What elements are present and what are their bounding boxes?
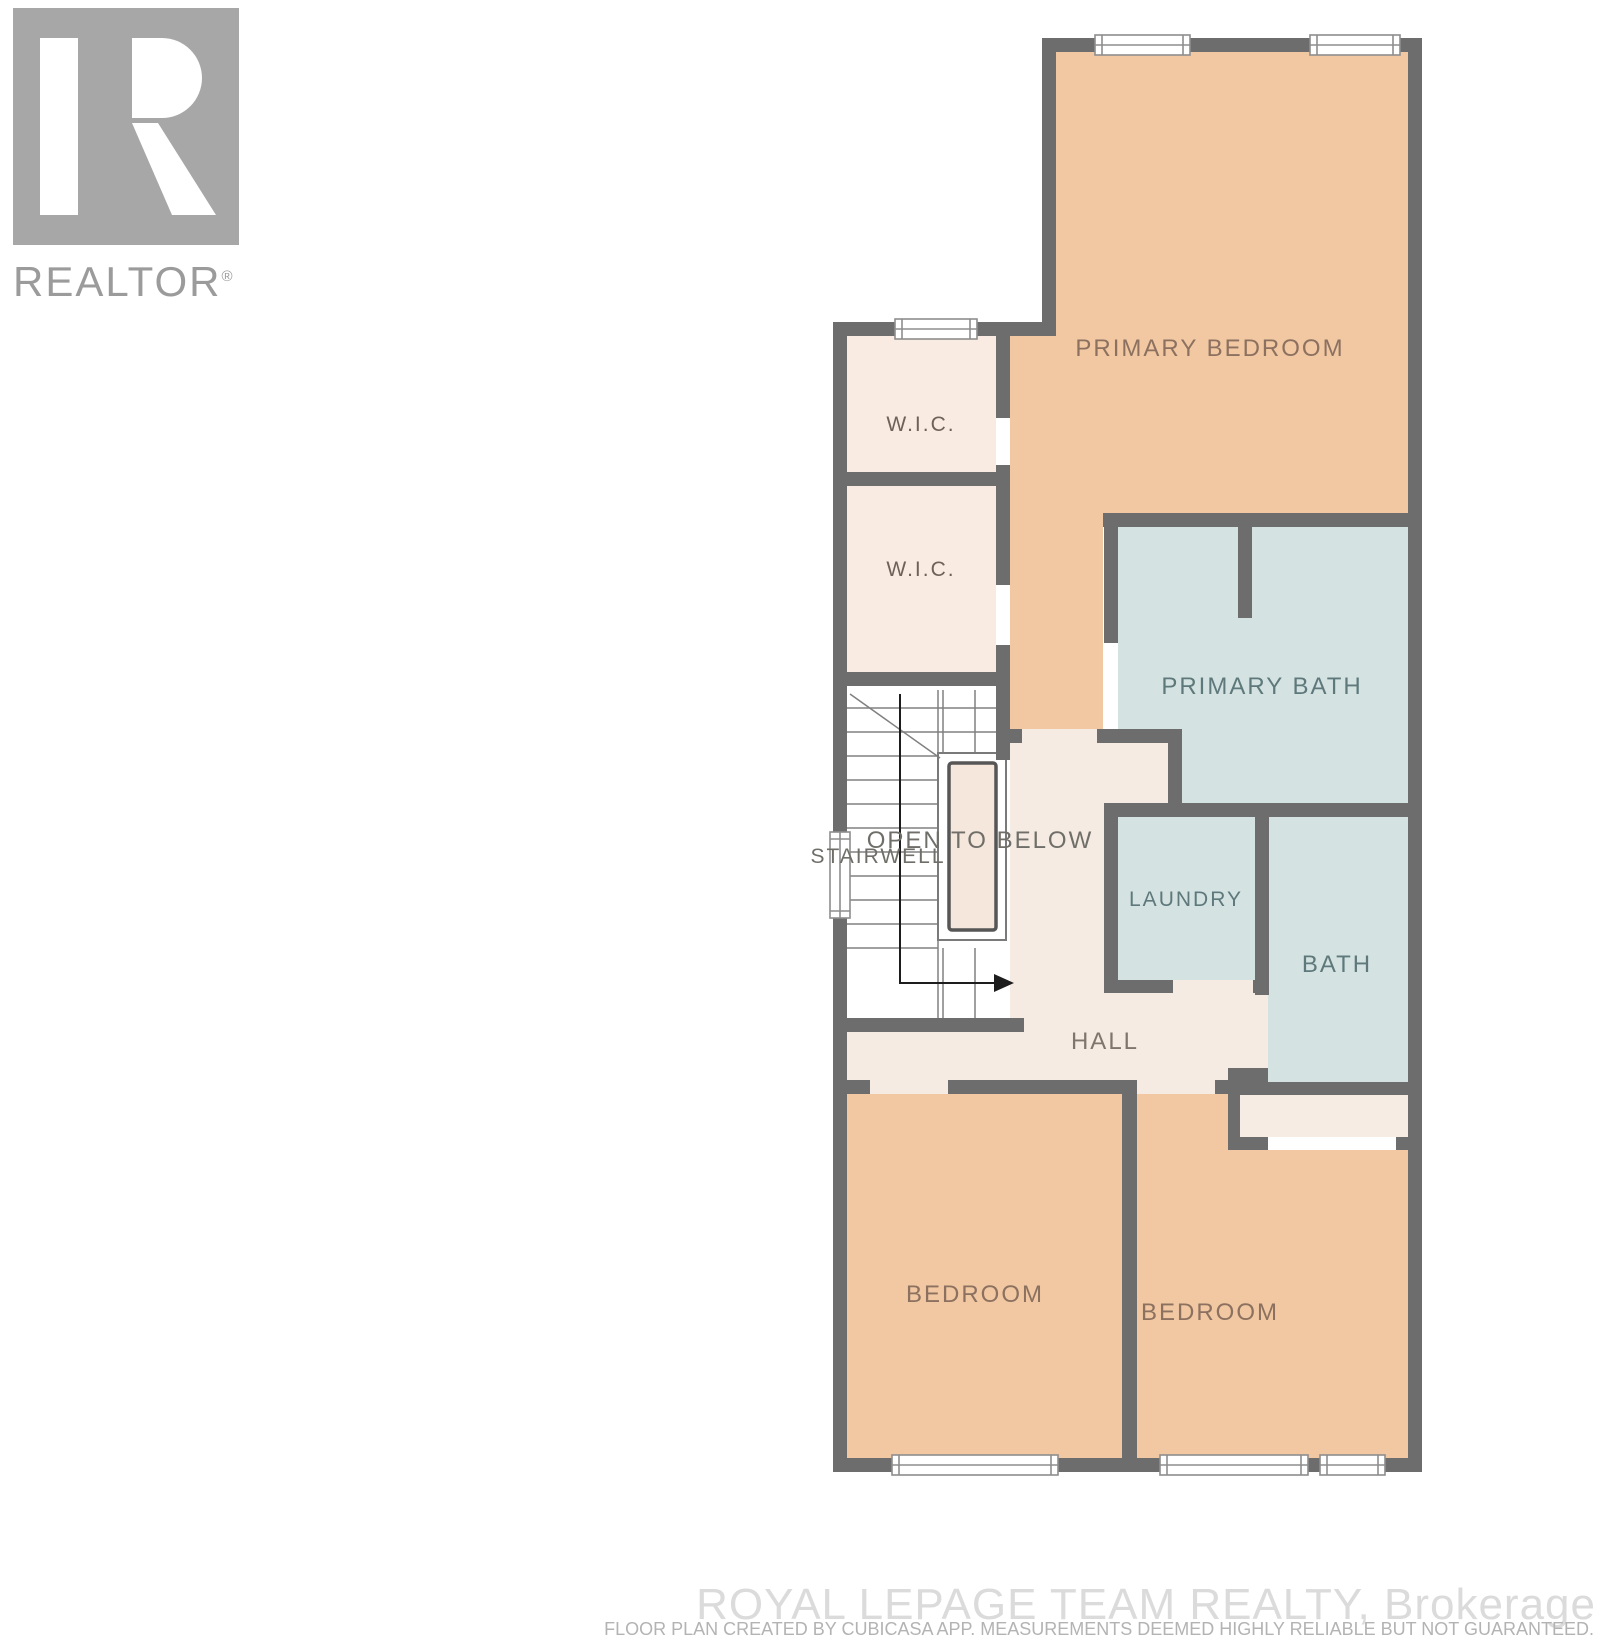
wall-segment [996,729,1022,743]
window-symbol [1095,35,1190,55]
floorplan-page: REALTOR® PRIMARY BEDROOM W.I.C. W.I.C. P… [0,0,1600,1644]
wall-segment [1122,1094,1137,1458]
hall-fill [1255,995,1268,1068]
wall-segment [1042,38,1056,336]
wall-segment [1168,743,1182,803]
room-label-open-to-below: OPEN TO BELOW [867,827,1094,855]
window-symbol [892,1455,1058,1475]
wall-segment [1238,527,1252,618]
window-symbol [1160,1455,1308,1475]
room-label-wic-1: W.I.C. [886,413,955,437]
wall-segment [833,672,1010,686]
room-label-hall: HALL [1071,1028,1139,1056]
room-label-laundry: LAUNDRY [1129,888,1243,912]
wall-segment [1228,1068,1268,1082]
wall-segment [996,645,1010,686]
closet-opening-gap [1268,1137,1396,1150]
floor-plan-drawing [0,0,1600,1644]
room-label-bedroom-left: BEDROOM [906,1281,1044,1309]
bedroom-right-door-gap [1137,1080,1215,1094]
wall-segment [1097,729,1182,743]
room-label-primary-bath: PRIMARY BATH [1161,673,1362,701]
bedroom-left-fill [847,1094,1122,1458]
wall-segment [1104,803,1408,817]
wall-segment [996,465,1010,585]
closet-fill [1240,1095,1408,1137]
room-label-bath: BATH [1302,951,1372,979]
wall-segment [833,472,1010,486]
wall-segment [1240,1137,1268,1150]
bedroom-left-door-gap [870,1080,948,1094]
floorplan-disclaimer: FLOOR PLAN CREATED BY CUBICASA APP. MEAS… [604,1619,1594,1640]
window-symbol [1320,1455,1385,1475]
primary-bedroom-door-gap [1022,729,1097,743]
wall-segment [833,1018,1024,1032]
wall-segment [948,1080,1137,1094]
wall-segment [1215,1080,1240,1094]
wall-segment [1396,1137,1408,1150]
hall-fill [1010,743,1168,803]
window-symbol [1310,35,1400,55]
wall-segment [996,686,1010,760]
wall-segment [1240,1082,1408,1095]
wall-segment [1103,513,1408,527]
room-label-wic-2: W.I.C. [886,558,955,582]
wall-segment [1408,38,1422,1472]
wic-1-fill [847,336,996,472]
hall-fill [847,1032,1024,1080]
wall-segment [1104,980,1173,993]
room-label-primary-bedroom: PRIMARY BEDROOM [1075,335,1344,363]
wall-segment [833,1080,870,1094]
bath-fill [1268,817,1408,1082]
wall-segment [1104,817,1118,993]
wall-segment [1255,817,1269,995]
laundry-door-gap [1173,980,1253,993]
wall-segment [996,334,1010,418]
wall-segment [1253,980,1268,993]
window-symbol [895,319,977,339]
room-label-bedroom-right: BEDROOM [1141,1299,1279,1327]
wall-segment [1104,527,1118,643]
